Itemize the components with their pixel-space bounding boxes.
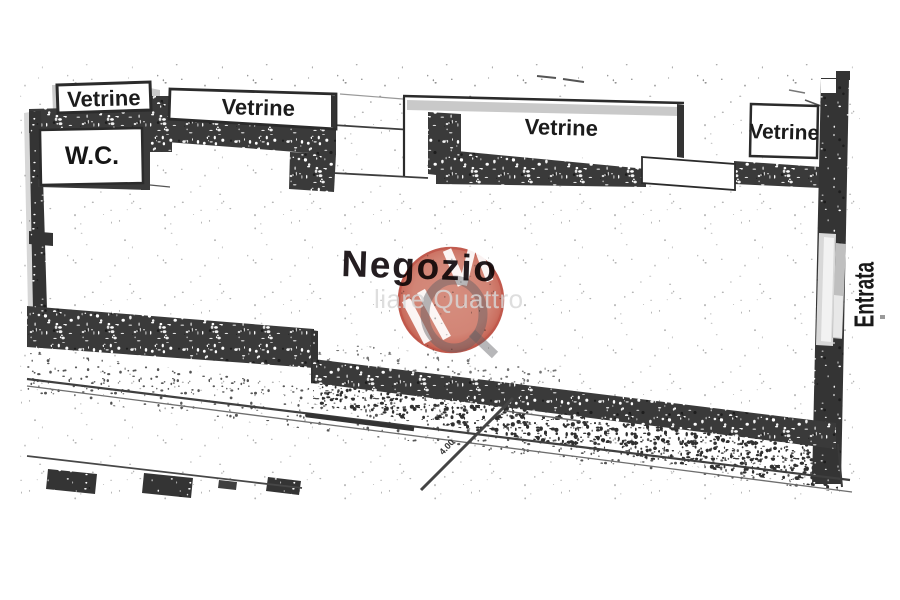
svg-text:W.C.: W.C.	[65, 142, 119, 170]
svg-text:Entrata: Entrata	[849, 261, 881, 327]
svg-text:Vetrine: Vetrine	[221, 94, 295, 121]
svg-text:Vetrine: Vetrine	[524, 114, 598, 141]
svg-text:Vetrine: Vetrine	[749, 120, 820, 145]
svg-text:Vetrine: Vetrine	[67, 85, 141, 112]
